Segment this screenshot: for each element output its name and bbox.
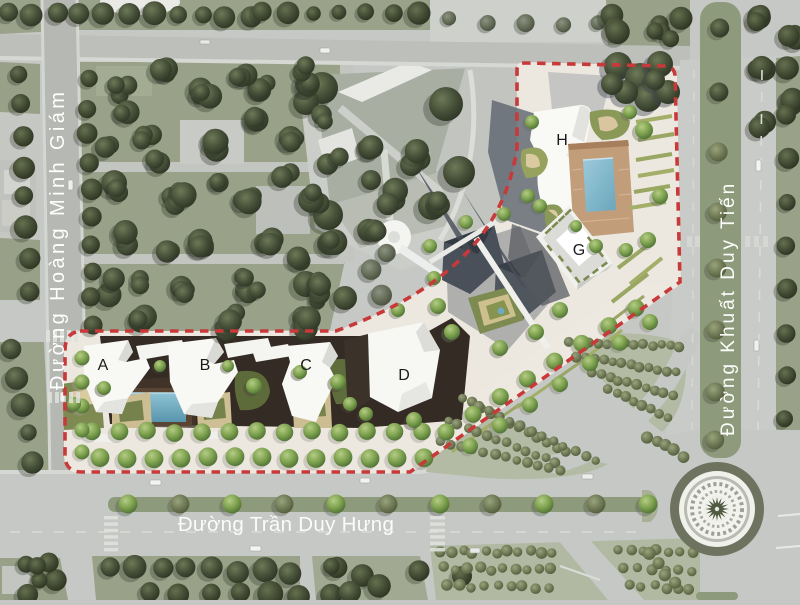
svg-text:Đường Trần Duy Hưng: Đường Trần Duy Hưng bbox=[178, 513, 394, 536]
svg-text:D: D bbox=[398, 367, 410, 384]
svg-text:A: A bbox=[98, 357, 109, 374]
svg-text:Đường Khuất Duy Tiến: Đường Khuất Duy Tiến bbox=[718, 181, 739, 436]
svg-text:Đường Hoàng Minh Giám: Đường Hoàng Minh Giám bbox=[47, 89, 69, 390]
svg-text:B: B bbox=[200, 357, 211, 374]
svg-text:G: G bbox=[573, 242, 585, 259]
svg-text:C: C bbox=[300, 357, 312, 374]
svg-text:H: H bbox=[556, 132, 568, 149]
